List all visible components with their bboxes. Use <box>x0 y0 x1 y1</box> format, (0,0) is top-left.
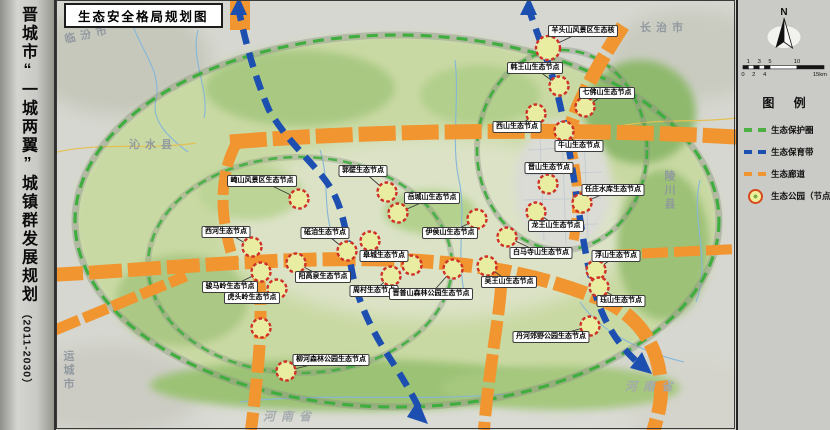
legend-item-label: 生态保护圈 <box>771 124 814 136</box>
map-title-text: 生态安全格局规划图 <box>78 10 209 24</box>
legend-item: 生态廊道 <box>744 163 830 185</box>
legend-title: 图 例 <box>754 94 813 111</box>
eco-park-node <box>403 256 422 275</box>
scale-tick: 1 <box>747 59 750 65</box>
eco-park-node <box>252 263 271 282</box>
scale-segment <box>748 66 753 69</box>
scale-segment <box>743 66 748 69</box>
eco-park-node <box>338 242 357 261</box>
plan-title: 晋城市“一城两翼”城镇群发展规划 <box>19 6 35 304</box>
scale-bar: 1351002415km <box>738 56 830 78</box>
eco-park-node <box>277 362 296 381</box>
eco-park-node <box>444 260 463 279</box>
eco-park-node <box>555 122 574 141</box>
scale-tick: 3 <box>758 59 761 65</box>
eco-park-node <box>268 280 287 299</box>
legend-symbol-corridor-icon <box>744 172 766 176</box>
scale-segment <box>797 66 824 69</box>
eco-park-node <box>536 36 560 60</box>
eco-park-node <box>468 210 487 229</box>
eco-park-node <box>498 228 517 247</box>
legend-symbol-protect-icon <box>744 128 766 132</box>
scale-segment <box>754 66 759 69</box>
eco-park-node <box>389 204 408 223</box>
scale-segment <box>765 66 770 69</box>
legend-panel: N 1351002415km 图 例 生态保护圈生态保育带生态廊道生态公园（节点… <box>736 0 830 430</box>
planning-poster: 临汾市长治市沁水县陵川县运城市河南省河南省羊头山风景区生态核韩王山生态节点七佛山… <box>0 0 830 430</box>
map-canvas <box>0 0 830 430</box>
sidebar-title-bar: 晋城市“一城两翼”城镇群发展规划 （2011-2030） <box>0 0 56 430</box>
legend-item: 生态保育带 <box>744 141 830 163</box>
scale-segment <box>759 66 764 69</box>
legend-items: 生态保护圈生态保育带生态廊道生态公园（节点） <box>738 119 830 207</box>
eco-park-node <box>527 203 546 222</box>
legend-item-label: 生态廊道 <box>771 168 805 180</box>
scale-segment <box>770 66 797 69</box>
eco-park-node <box>378 183 397 202</box>
eco-park-node <box>573 194 592 213</box>
scale-end-label: 15km <box>813 72 827 78</box>
eco-park-node <box>550 77 569 96</box>
legend-symbol-park-icon <box>748 189 763 204</box>
legend-item: 生态公园（节点） <box>744 185 830 207</box>
legend-symbol-conserve-icon <box>744 150 766 154</box>
eco-park-node <box>478 257 497 276</box>
eco-park-node <box>382 267 401 286</box>
eco-park-node <box>290 190 309 209</box>
eco-park-node <box>361 232 380 251</box>
map-title-box: 生态安全格局规划图 <box>64 3 223 28</box>
eco-park-node <box>539 175 558 194</box>
eco-park-node <box>590 278 609 297</box>
legend-item-label: 生态公园（节点） <box>771 190 830 202</box>
plan-years: （2011-2030） <box>20 308 35 390</box>
legend-item-label: 生态保育带 <box>771 146 814 158</box>
eco-park-node <box>252 319 271 338</box>
north-arrow: N <box>752 4 816 56</box>
scale-tick: 10 <box>794 59 800 65</box>
scale-tick: 0 <box>741 72 744 78</box>
eco-park-node <box>576 98 595 117</box>
scale-tick: 4 <box>763 72 767 78</box>
scale-tick: 5 <box>768 59 771 65</box>
eco-park-node <box>287 254 306 273</box>
legend-item: 生态保护圈 <box>744 119 830 141</box>
eco-park-node <box>243 238 262 257</box>
eco-park-node <box>581 317 600 336</box>
north-label: N <box>780 7 787 18</box>
scale-tick: 2 <box>752 72 755 78</box>
eco-park-node <box>527 105 546 124</box>
eco-park-node <box>587 261 606 280</box>
